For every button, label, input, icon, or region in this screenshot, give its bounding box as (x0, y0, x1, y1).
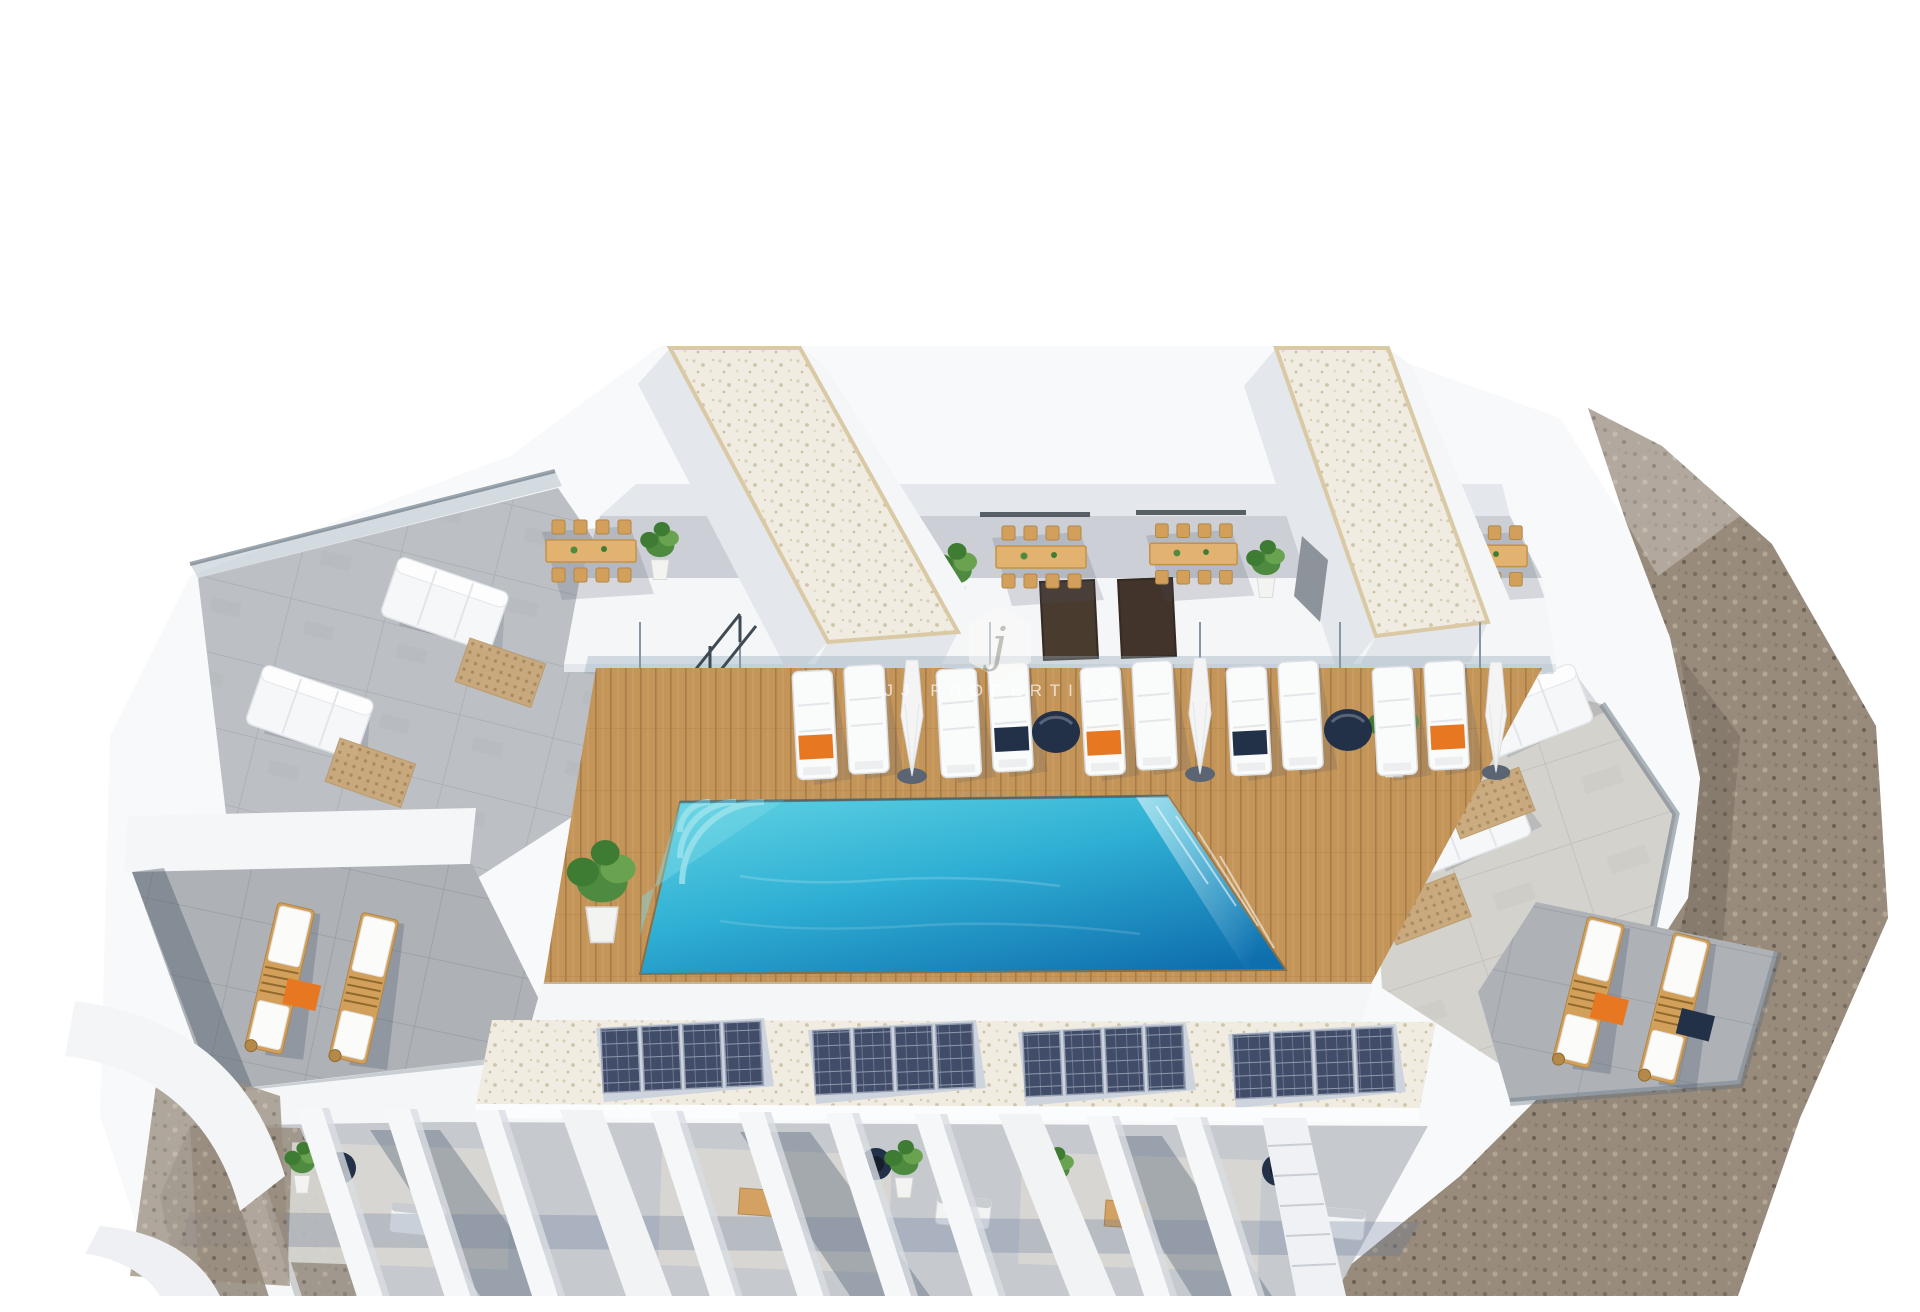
lounger-pair (1226, 659, 1338, 781)
lounger-pair (936, 661, 1048, 783)
navy-towel (1232, 730, 1267, 756)
render-canvas: j JJ PROPERTIES (40, 16, 1920, 1296)
orange-towel (1430, 724, 1465, 750)
navy-towel (994, 726, 1029, 752)
watermark-brand-text: JJ PROPERTIES (885, 681, 1120, 700)
pergola-bar (1136, 510, 1246, 515)
pergola-terraces (160, 1108, 1428, 1296)
lounger-pair (1372, 659, 1484, 781)
orange-towel (798, 734, 833, 760)
solar-roof (474, 984, 1436, 1122)
architectural-render: j JJ PROPERTIES (40, 16, 1920, 1296)
lounger-pair (1080, 659, 1192, 781)
pergola-bar (980, 512, 1090, 517)
orange-towel (1086, 730, 1121, 756)
round-pouf-table (1324, 709, 1372, 751)
round-pouf-table (1032, 711, 1080, 753)
